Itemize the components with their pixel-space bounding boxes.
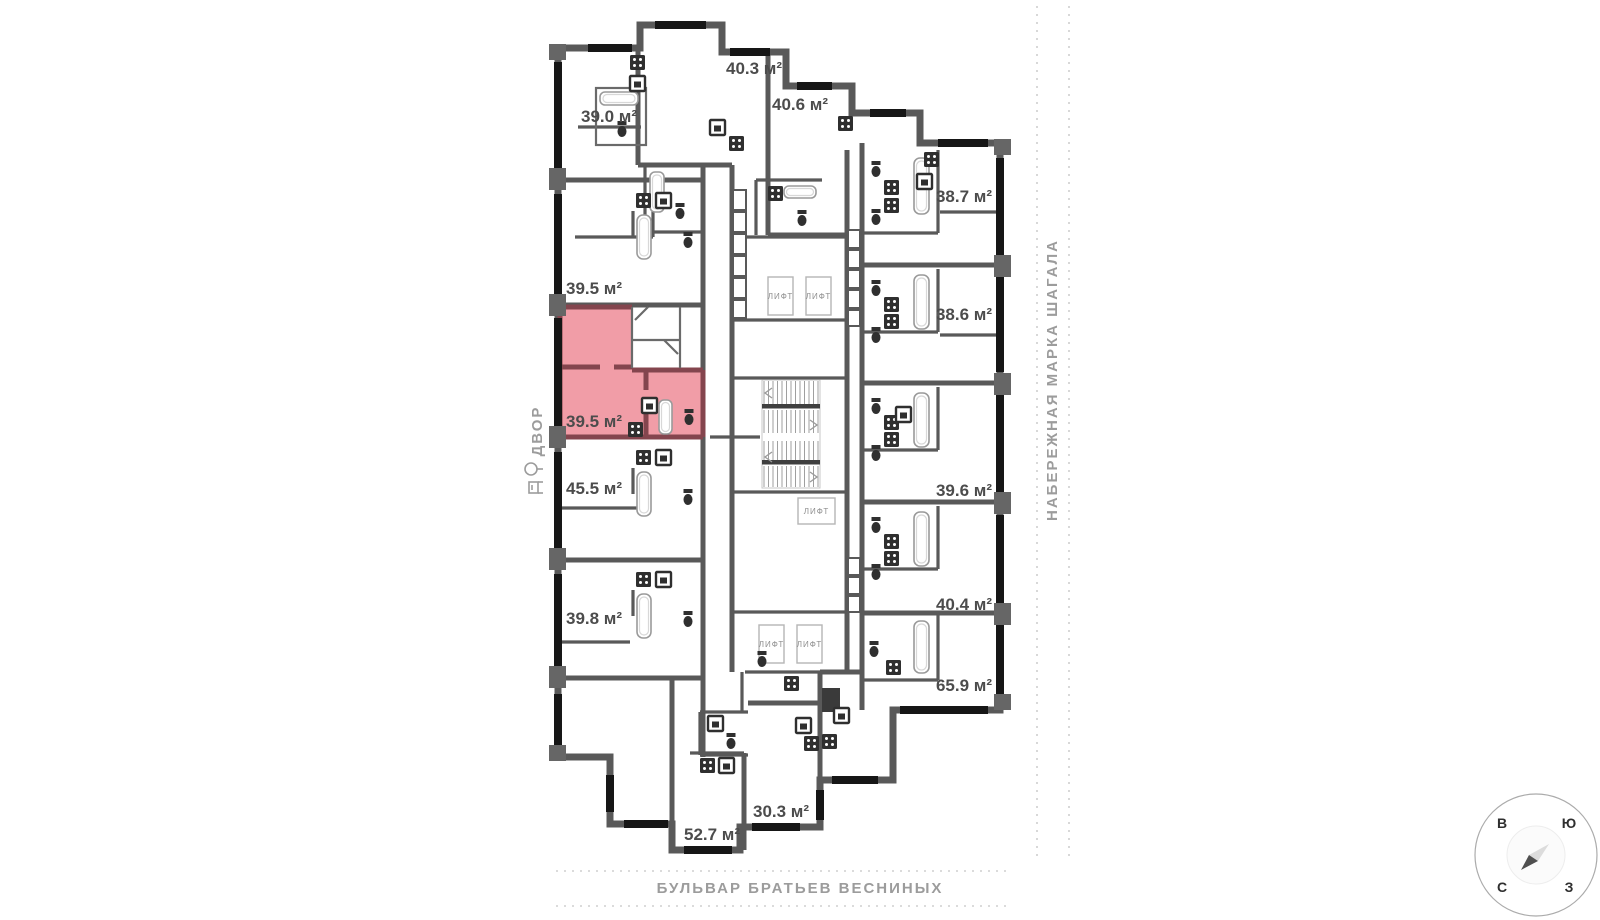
washer-icon	[656, 450, 671, 465]
compass-letter-west: З	[1565, 879, 1574, 895]
toilet-icon	[872, 327, 881, 343]
stove-icon	[884, 180, 899, 195]
elevator-label: ЛИФТ	[804, 507, 830, 516]
stove-icon	[884, 297, 899, 312]
toilet-icon	[872, 161, 881, 177]
stove-icon	[729, 136, 744, 151]
toilet-icon	[798, 210, 807, 226]
toilet-icon	[684, 489, 693, 505]
washer-icon	[719, 758, 734, 773]
washer-icon	[656, 193, 671, 208]
stove-icon	[838, 116, 853, 131]
area-label-40-6: 40.6 м²	[772, 95, 828, 114]
stove-icon	[804, 736, 819, 751]
toilet-icon	[872, 280, 881, 296]
toilet-icon	[870, 641, 879, 657]
washer-icon	[834, 708, 849, 723]
washer-icon	[642, 398, 657, 413]
stove-icon	[822, 734, 837, 749]
elevator-label: ЛИФТ	[759, 640, 785, 649]
area-label-39-5-top: 39.5 м²	[566, 279, 622, 298]
elevator-label: ЛИФТ	[768, 292, 794, 301]
stove-icon	[784, 676, 799, 691]
toilet-icon	[872, 398, 881, 414]
toilet-icon	[872, 445, 881, 461]
stove-icon	[636, 450, 651, 465]
street-right-label: НАБЕРЕЖНАЯ МАРКА ШАГАЛА	[1044, 239, 1061, 521]
stove-icon	[630, 55, 645, 70]
area-label-40-3: 40.3 м²	[726, 59, 782, 78]
toilet-icon	[872, 517, 881, 533]
stove-icon	[884, 432, 899, 447]
toilet-icon	[684, 232, 693, 248]
stove-icon	[768, 186, 783, 201]
area-label-38-7: 38.7 м²	[936, 187, 992, 206]
compass-letter-north: С	[1497, 879, 1507, 895]
washer-icon	[896, 407, 911, 422]
stove-icon	[884, 198, 899, 213]
elevator-label: ЛИФТ	[797, 640, 823, 649]
stove-icon	[886, 660, 901, 675]
toilet-icon	[676, 203, 685, 219]
compass-letter-east: В	[1497, 815, 1507, 831]
stove-icon	[700, 758, 715, 773]
street-bottom-label: БУЛЬВАР БРАТЬЕВ ВЕСНИНЫХ	[657, 880, 944, 897]
area-label-45-5: 45.5 м²	[566, 479, 622, 498]
washer-icon	[708, 716, 723, 731]
street-bottom: БУЛЬВАР БРАТЬЕВ ВЕСНИНЫХ	[556, 871, 1010, 906]
washer-icon	[796, 718, 811, 733]
elevator-label: ЛИФТ	[806, 292, 832, 301]
toilet-icon	[758, 651, 767, 667]
stove-icon	[924, 152, 939, 167]
courtyard-label: ДВОР	[529, 406, 546, 457]
area-label-40-4: 40.4 м²	[936, 595, 992, 614]
area-label-39-0: 39.0 м²	[581, 107, 637, 126]
stove-icon	[636, 193, 651, 208]
washer-icon	[630, 76, 645, 91]
washer-icon	[710, 120, 725, 135]
toilet-icon	[727, 733, 736, 749]
floorplan-page: ЛИФТ ЛИФТ ЛИФТ ЛИФТ ЛИФТ	[0, 0, 1600, 920]
compass-letter-south: Ю	[1562, 815, 1576, 831]
stove-icon	[628, 422, 643, 437]
toilet-icon	[872, 564, 881, 580]
area-label-39-5-highlighted: 39.5 м²	[566, 412, 622, 431]
area-label-39-8: 39.8 м²	[566, 609, 622, 628]
area-label-30-3: 30.3 м²	[753, 802, 809, 821]
stove-icon	[884, 534, 899, 549]
courtyard: ДВОР	[525, 406, 546, 493]
street-right: НАБЕРЕЖНАЯ МАРКА ШАГАЛА	[1037, 6, 1069, 856]
floorplan-canvas: ЛИФТ ЛИФТ ЛИФТ ЛИФТ ЛИФТ	[0, 0, 1600, 920]
stove-icon	[884, 314, 899, 329]
compass: В Ю С З	[1475, 794, 1597, 916]
area-label-52-7: 52.7 м²	[684, 825, 740, 844]
toilet-icon	[684, 611, 693, 627]
area-label-39-6: 39.6 м²	[936, 481, 992, 500]
toilet-icon	[872, 209, 881, 225]
washer-icon	[656, 572, 671, 587]
stove-icon	[884, 551, 899, 566]
courtyard-icon	[525, 463, 543, 493]
stove-icon	[636, 572, 651, 587]
area-label-38-6: 38.6 м²	[936, 305, 992, 324]
toilet-icon	[685, 409, 694, 425]
area-label-65-9: 65.9 м²	[936, 676, 992, 695]
washer-icon	[917, 174, 932, 189]
